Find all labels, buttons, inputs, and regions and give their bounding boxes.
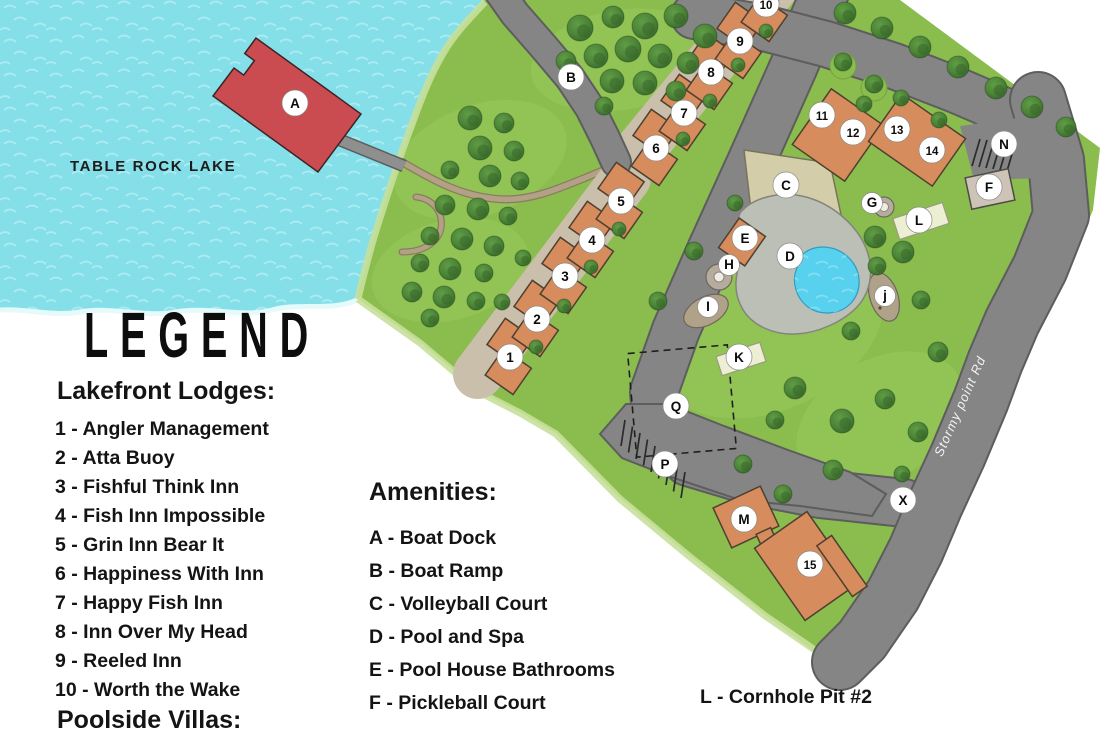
map-marker-11: 11 bbox=[809, 102, 835, 128]
tree-icon bbox=[703, 94, 717, 108]
map-marker-3: 3 bbox=[552, 263, 578, 289]
svg-text:8: 8 bbox=[707, 65, 715, 80]
resort-map-page: { "map": { "lake_label": "TABLE ROCK LAK… bbox=[0, 0, 1100, 720]
svg-text:1: 1 bbox=[506, 350, 514, 365]
tree-icon bbox=[435, 195, 455, 215]
tree-icon bbox=[433, 286, 455, 308]
map-marker-H: H bbox=[719, 255, 740, 276]
svg-text:E: E bbox=[740, 231, 749, 246]
tree-icon bbox=[908, 422, 928, 442]
svg-text:M: M bbox=[738, 512, 749, 527]
tree-icon bbox=[912, 291, 930, 309]
tree-icon bbox=[842, 322, 860, 340]
tree-icon bbox=[612, 222, 626, 236]
tree-icon bbox=[893, 90, 909, 106]
map-marker-15: 15 bbox=[797, 551, 823, 577]
tree-icon bbox=[830, 409, 854, 433]
poolside-villas-heading-partial: Poolside Villas: bbox=[57, 706, 241, 735]
svg-text:I: I bbox=[706, 299, 710, 314]
svg-text:12: 12 bbox=[847, 128, 860, 140]
tree-icon bbox=[894, 466, 910, 482]
lodge-legend-entry: 8 - Inn Over My Head bbox=[55, 618, 269, 647]
legend-title: LEGEND bbox=[84, 303, 320, 367]
tree-icon bbox=[602, 6, 624, 28]
map-marker-E: E bbox=[732, 225, 758, 251]
map-marker-K: K bbox=[726, 344, 752, 370]
svg-text:A: A bbox=[290, 96, 300, 111]
tree-icon bbox=[467, 292, 485, 310]
tree-icon bbox=[856, 96, 872, 112]
lodge-legend-entry: 4 - Fish Inn Impossible bbox=[55, 502, 269, 531]
map-marker-7: 7 bbox=[671, 100, 697, 126]
tree-icon bbox=[664, 4, 688, 28]
tree-icon bbox=[529, 340, 543, 354]
tree-icon bbox=[402, 282, 422, 302]
svg-text:N: N bbox=[999, 137, 1009, 152]
map-marker-6: 6 bbox=[643, 135, 669, 161]
tree-icon bbox=[727, 195, 743, 211]
tree-icon bbox=[774, 485, 792, 503]
map-marker-P: P bbox=[652, 451, 678, 477]
map-marker-X: X bbox=[890, 487, 916, 513]
amenities-heading: Amenities: bbox=[369, 478, 497, 507]
map-marker-14: 14 bbox=[919, 137, 945, 163]
svg-text:14: 14 bbox=[926, 146, 939, 158]
tree-icon bbox=[931, 112, 947, 128]
svg-text:L: L bbox=[915, 213, 923, 228]
tree-icon bbox=[909, 36, 931, 58]
svg-text:H: H bbox=[724, 257, 734, 272]
tree-icon bbox=[693, 24, 717, 48]
tree-icon bbox=[731, 58, 745, 72]
lodge-legend-entry: 2 - Atta Buoy bbox=[55, 444, 269, 473]
tree-icon bbox=[600, 69, 624, 93]
map-marker-9: 9 bbox=[727, 28, 753, 54]
tree-icon bbox=[759, 24, 773, 38]
tree-icon bbox=[421, 309, 439, 327]
lodges-heading: Lakefront Lodges: bbox=[57, 377, 275, 406]
tree-icon bbox=[584, 260, 598, 274]
tree-icon bbox=[766, 411, 784, 429]
tree-icon bbox=[584, 44, 608, 68]
tree-icon bbox=[632, 13, 658, 39]
tree-icon bbox=[1056, 117, 1076, 137]
map-marker-D: D bbox=[777, 243, 803, 269]
lake-label: TABLE ROCK LAKE bbox=[70, 158, 236, 175]
tree-icon bbox=[834, 53, 852, 71]
map-marker-A: A bbox=[282, 90, 308, 116]
tree-icon bbox=[458, 106, 482, 130]
amenity-legend-entry: C - Volleyball Court bbox=[369, 588, 615, 621]
svg-text:K: K bbox=[734, 350, 744, 365]
tree-icon bbox=[823, 460, 843, 480]
svg-text:B: B bbox=[566, 70, 576, 85]
tree-icon bbox=[875, 389, 895, 409]
tree-icon bbox=[666, 81, 686, 101]
lodge-legend-entry: 7 - Happy Fish Inn bbox=[55, 589, 269, 618]
tree-icon bbox=[1021, 96, 1043, 118]
map-marker-8: 8 bbox=[698, 59, 724, 85]
svg-text:X: X bbox=[898, 493, 907, 508]
map-marker-Q: Q bbox=[663, 393, 689, 419]
amenity-legend-entry: A - Boat Dock bbox=[369, 522, 615, 555]
tree-icon bbox=[648, 44, 672, 68]
tree-icon bbox=[494, 294, 510, 310]
tree-icon bbox=[864, 226, 886, 248]
svg-text:F: F bbox=[985, 180, 993, 195]
tree-icon bbox=[439, 258, 461, 280]
tree-icon bbox=[649, 292, 667, 310]
svg-text:Q: Q bbox=[671, 399, 682, 414]
lodge-legend-entry: 5 - Grin Inn Bear It bbox=[55, 531, 269, 560]
svg-text:15: 15 bbox=[804, 560, 817, 572]
lodge-legend-entry: 6 - Happiness With Inn bbox=[55, 560, 269, 589]
tree-icon bbox=[871, 17, 893, 39]
tree-icon bbox=[511, 172, 529, 190]
tree-icon bbox=[421, 227, 439, 245]
amenities-list: A - Boat Dock B - Boat Ramp C - Volleyba… bbox=[369, 522, 615, 720]
tree-icon bbox=[441, 161, 459, 179]
tree-icon bbox=[567, 15, 593, 41]
map-marker-4: 4 bbox=[579, 227, 605, 253]
amenity-legend-entry-l: L - Cornhole Pit #2 bbox=[700, 686, 872, 709]
tree-icon bbox=[985, 77, 1007, 99]
svg-text:2: 2 bbox=[533, 312, 541, 327]
svg-text:D: D bbox=[785, 249, 795, 264]
map-marker-G: G bbox=[862, 193, 883, 214]
tree-icon bbox=[515, 250, 531, 266]
svg-text:9: 9 bbox=[736, 34, 744, 49]
svg-text:j: j bbox=[882, 288, 887, 303]
map-marker-N: N bbox=[991, 131, 1017, 157]
svg-text:13: 13 bbox=[891, 125, 904, 137]
tree-icon bbox=[868, 257, 886, 275]
map-marker-C: C bbox=[773, 172, 799, 198]
tree-icon bbox=[947, 56, 969, 78]
map-marker-13: 13 bbox=[884, 116, 910, 142]
map-marker-M: M bbox=[731, 506, 757, 532]
lodge-legend-entry: 10 - Worth the Wake bbox=[55, 676, 269, 705]
tree-icon bbox=[494, 113, 514, 133]
tree-icon bbox=[557, 299, 571, 313]
tree-icon bbox=[468, 136, 492, 160]
tree-icon bbox=[411, 254, 429, 272]
map-marker-1: 1 bbox=[497, 344, 523, 370]
map-marker-L: L bbox=[906, 207, 932, 233]
tree-icon bbox=[865, 75, 883, 93]
tree-icon bbox=[928, 342, 948, 362]
tree-icon bbox=[479, 165, 501, 187]
map-marker-B: B bbox=[558, 64, 584, 90]
tree-icon bbox=[484, 236, 504, 256]
amenity-legend-entry: F - Pickleball Court bbox=[369, 687, 615, 720]
svg-text:5: 5 bbox=[617, 194, 625, 209]
svg-text:C: C bbox=[781, 178, 791, 193]
tree-icon bbox=[475, 264, 493, 282]
tree-icon bbox=[734, 455, 752, 473]
svg-text:10: 10 bbox=[760, 0, 773, 12]
tree-icon bbox=[504, 141, 524, 161]
amenity-legend-entry: E - Pool House Bathrooms bbox=[369, 654, 615, 687]
map-marker-F: F bbox=[976, 174, 1002, 200]
amenity-legend-entry: D - Pool and Spa bbox=[369, 621, 615, 654]
tree-icon bbox=[676, 132, 690, 146]
map-marker-j: j bbox=[875, 286, 896, 307]
map-marker-12: 12 bbox=[840, 119, 866, 145]
lodge-legend-entry: 9 - Reeled Inn bbox=[55, 647, 269, 676]
tree-icon bbox=[834, 2, 856, 24]
lodge-legend-entry: 1 - Angler Management bbox=[55, 415, 269, 444]
lodges-list: 1 - Angler Management 2 - Atta Buoy 3 - … bbox=[55, 415, 269, 705]
map-marker-I: I bbox=[698, 297, 719, 318]
tree-icon bbox=[685, 242, 703, 260]
tree-icon bbox=[633, 71, 657, 95]
svg-text:6: 6 bbox=[652, 141, 660, 156]
tree-icon bbox=[615, 36, 641, 62]
tree-icon bbox=[892, 241, 914, 263]
lodge-legend-entry: 3 - Fishful Think Inn bbox=[55, 473, 269, 502]
tree-icon bbox=[467, 198, 489, 220]
svg-text:7: 7 bbox=[680, 106, 688, 121]
svg-text:P: P bbox=[660, 457, 669, 472]
svg-text:3: 3 bbox=[561, 269, 569, 284]
tree-icon bbox=[499, 207, 517, 225]
svg-text:11: 11 bbox=[816, 111, 829, 123]
amenity-legend-entry: B - Boat Ramp bbox=[369, 555, 615, 588]
tree-icon bbox=[595, 97, 613, 115]
tree-icon bbox=[784, 377, 806, 399]
tree-icon bbox=[451, 228, 473, 250]
svg-text:G: G bbox=[867, 195, 878, 210]
map-marker-5: 5 bbox=[608, 188, 634, 214]
map-marker-2: 2 bbox=[524, 306, 550, 332]
svg-text:4: 4 bbox=[588, 233, 596, 248]
tree-icon bbox=[677, 52, 699, 74]
